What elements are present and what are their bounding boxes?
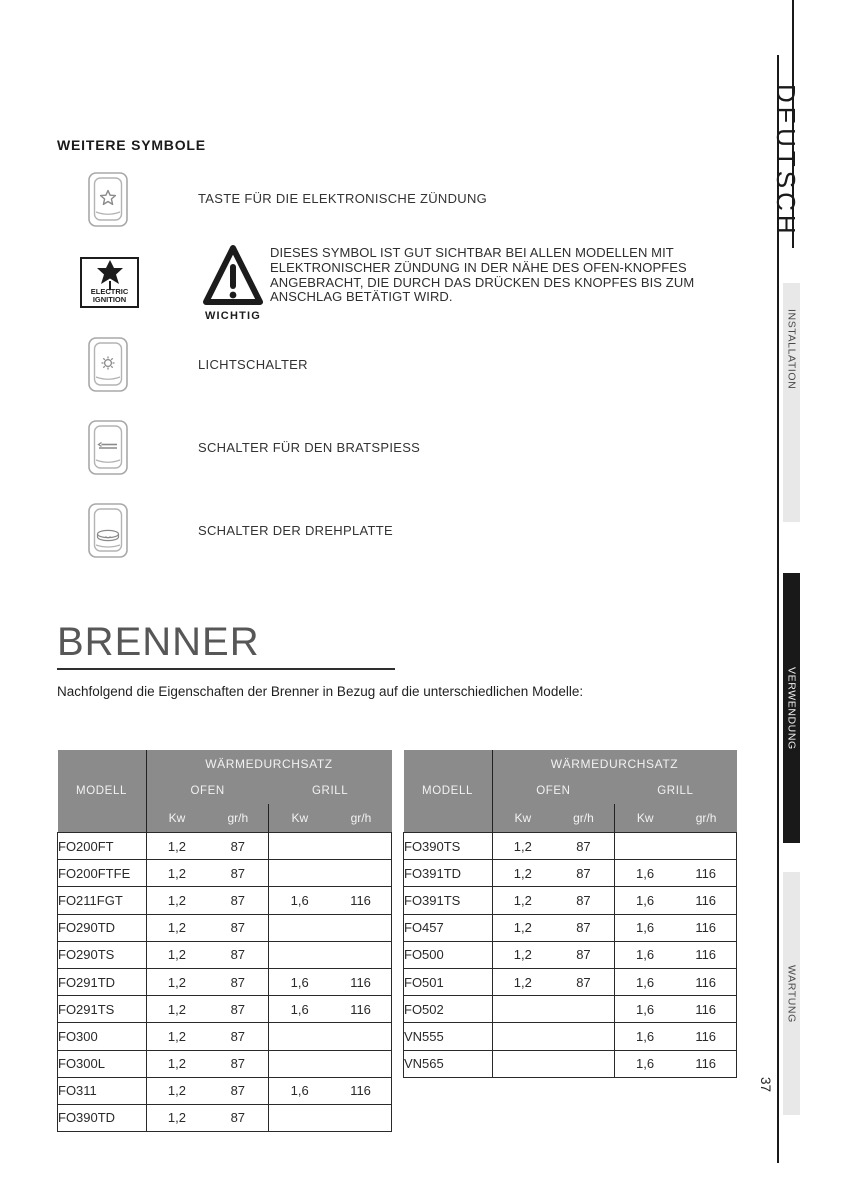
warning-triangle-icon (202, 243, 264, 314)
col-header-ofen: OFEN (146, 778, 269, 804)
value: 1,2 (147, 1083, 208, 1098)
table-row: FO291TS1,2871,6116 (58, 996, 392, 1023)
col-header-modell: MODELL (58, 750, 147, 833)
manual-page: WEITERE SYMBOLE TASTE FÜR DIE ELEKTRONIS… (0, 0, 850, 1179)
value: 1,6 (615, 866, 676, 881)
unit-grh: gr/h (330, 811, 391, 825)
sidebar-tab-installation-label: INSTALLATION (786, 283, 798, 389)
model-cell: FO457 (404, 914, 493, 941)
value: 87 (207, 893, 268, 908)
table-row: FO5021,6116 (404, 996, 737, 1023)
value: 87 (553, 893, 614, 908)
value: 1,2 (147, 1002, 208, 1017)
value: 1,2 (147, 866, 208, 881)
value: 87 (553, 947, 614, 962)
burner-table-left: MODELL WÄRMEDURCHSATZ OFEN GRILL Kw gr/h… (57, 750, 392, 1132)
unit-kw: Kw (269, 811, 330, 825)
value: 1,6 (615, 893, 676, 908)
ofen-cell: 1,287 (492, 941, 614, 968)
grill-cell: 1,6116 (269, 1077, 392, 1104)
grill-cell (269, 1023, 392, 1050)
burner-table-right-body: FO390TS1,287FO391TD1,2871,6116FO391TS1,2… (404, 833, 737, 1078)
table-row: FO3001,287 (58, 1023, 392, 1050)
warning-text-line: ANSCHLAG BETÄTIGT WIRD. (270, 290, 694, 305)
value: 87 (553, 975, 614, 990)
value: 116 (675, 1056, 736, 1071)
warning-caption: WICHTIG (202, 310, 264, 322)
sidebar-tab-verwendung-label: VERWENDUNG (786, 667, 798, 750)
grill-cell: 1,6116 (614, 1050, 736, 1077)
value: 1,2 (147, 1110, 208, 1125)
grill-cell: 1,6116 (614, 887, 736, 914)
light-switch-label: LICHTSCHALTER (198, 357, 308, 372)
value: 87 (207, 947, 268, 962)
unit-grh: gr/h (553, 811, 614, 825)
model-cell: FO311 (58, 1077, 147, 1104)
unit-kw: Kw (493, 811, 554, 825)
grill-cell: 1,6116 (269, 996, 392, 1023)
col-header-waermedurchsatz: WÄRMEDURCHSATZ (492, 750, 737, 778)
model-cell: VN565 (404, 1050, 493, 1077)
model-cell: FO501 (404, 968, 493, 995)
electric-ignition-icon: ELECTRIC IGNITION (80, 257, 139, 308)
grill-cell (269, 833, 392, 860)
grill-cell (269, 1050, 392, 1077)
ofen-cell: 1,287 (492, 833, 614, 860)
value: 87 (553, 866, 614, 881)
ofen-cell: 1,287 (492, 914, 614, 941)
warning-text-line: DIESES SYMBOL IST GUT SICHTBAR BEI ALLEN… (270, 246, 694, 261)
brenner-heading: BRENNER (57, 622, 395, 670)
model-cell: FO290TD (58, 914, 147, 941)
value: 1,2 (147, 893, 208, 908)
value: 1,2 (147, 920, 208, 935)
value: 87 (207, 920, 268, 935)
value: 116 (675, 947, 736, 962)
burner-table-header: MODELL WÄRMEDURCHSATZ OFEN GRILL Kw gr/h… (58, 750, 392, 833)
sidebar-tab-installation: INSTALLATION (783, 283, 800, 522)
ofen-cell: 1,287 (146, 887, 269, 914)
sidebar-tab-verwendung: VERWENDUNG (783, 573, 800, 843)
model-cell: FO291TD (58, 968, 147, 995)
ofen-cell (492, 1023, 614, 1050)
value: 116 (675, 975, 736, 990)
model-cell: FO502 (404, 996, 493, 1023)
value: 1,6 (269, 1083, 330, 1098)
grill-cell (269, 914, 392, 941)
value: 87 (207, 1056, 268, 1071)
table-row: FO391TS1,2871,6116 (404, 887, 737, 914)
ofen-cell (492, 1050, 614, 1077)
ofen-cell: 1,287 (146, 1104, 269, 1131)
grill-cell: 1,6116 (614, 1023, 736, 1050)
model-cell: FO300 (58, 1023, 147, 1050)
table-row: FO390TD1,287 (58, 1104, 392, 1131)
grill-cell (269, 941, 392, 968)
ofen-cell: 1,287 (146, 996, 269, 1023)
ofen-cell: 1,287 (146, 914, 269, 941)
col-header-ofen: OFEN (492, 778, 614, 804)
table-row: VN5551,6116 (404, 1023, 737, 1050)
model-cell: FO390TS (404, 833, 493, 860)
value: 1,2 (493, 947, 554, 962)
value: 116 (675, 893, 736, 908)
turntable-switch-label: SCHALTER DER DREHPLATTE (198, 523, 393, 538)
unit-grh: gr/h (207, 811, 268, 825)
electric-ignition-label-line2: IGNITION (91, 296, 129, 304)
table-row: FO5001,2871,6116 (404, 941, 737, 968)
table-row: FO200FT1,287 (58, 833, 392, 860)
table-row: FO291TD1,2871,6116 (58, 968, 392, 995)
value: 1,6 (615, 1029, 676, 1044)
model-cell: FO390TD (58, 1104, 147, 1131)
col-header-grill: GRILL (269, 778, 392, 804)
page-number: 37 (758, 1077, 773, 1092)
ofen-cell: 1,287 (146, 1023, 269, 1050)
model-cell: FO391TD (404, 860, 493, 887)
grill-cell: 1,6116 (614, 860, 736, 887)
ofen-cell: 1,287 (146, 833, 269, 860)
value: 1,2 (147, 1029, 208, 1044)
burner-table-left-body: FO200FT1,287FO200FTFE1,287FO211FGT1,2871… (58, 833, 392, 1132)
value: 1,2 (147, 839, 208, 854)
model-cell: VN555 (404, 1023, 493, 1050)
table-row: FO390TS1,287 (404, 833, 737, 860)
model-cell: FO200FT (58, 833, 147, 860)
value: 1,6 (269, 1002, 330, 1017)
value: 1,2 (493, 975, 554, 990)
value: 87 (207, 1083, 268, 1098)
ofen-cell: 1,287 (146, 968, 269, 995)
burner-table-header: MODELL WÄRMEDURCHSATZ OFEN GRILL Kw gr/h… (404, 750, 737, 833)
value: 1,2 (493, 920, 554, 935)
value: 116 (675, 1002, 736, 1017)
value: 1,2 (147, 947, 208, 962)
warning-text-line: ANGEBRACHT, DIE DURCH DAS DRÜCKEN DES KN… (270, 276, 694, 291)
language-tab: DEUTSCH (770, 84, 801, 238)
table-row: FO4571,2871,6116 (404, 914, 737, 941)
value: 116 (675, 1029, 736, 1044)
rotisserie-switch-label: SCHALTER FÜR DEN BRATSPIESS (198, 440, 420, 455)
table-row: FO290TD1,287 (58, 914, 392, 941)
ofen-cell: 1,287 (492, 887, 614, 914)
brenner-intro: Nachfolgend die Eigenschaften der Brenne… (57, 684, 583, 699)
value: 87 (207, 866, 268, 881)
value: 1,2 (147, 975, 208, 990)
value: 1,6 (269, 893, 330, 908)
value: 116 (675, 920, 736, 935)
model-cell: FO300L (58, 1050, 147, 1077)
value: 1,2 (493, 893, 554, 908)
grill-cell (269, 860, 392, 887)
symbols-heading: WEITERE SYMBOLE (57, 137, 206, 153)
model-cell: FO290TS (58, 941, 147, 968)
table-row: FO3111,2871,6116 (58, 1077, 392, 1104)
col-header-modell: MODELL (404, 750, 493, 833)
model-cell: FO500 (404, 941, 493, 968)
col-header-waermedurchsatz: WÄRMEDURCHSATZ (146, 750, 392, 778)
value: 1,6 (615, 920, 676, 935)
ofen-cell (492, 996, 614, 1023)
table-row: VN5651,6116 (404, 1050, 737, 1077)
ignition-button-label: TASTE FÜR DIE ELEKTRONISCHE ZÜNDUNG (198, 191, 487, 206)
table-row: FO200FTFE1,287 (58, 860, 392, 887)
warning-text: DIESES SYMBOL IST GUT SICHTBAR BEI ALLEN… (270, 246, 694, 305)
grill-cell: 1,6116 (614, 968, 736, 995)
grill-cell (614, 833, 736, 860)
col-header-grill: GRILL (614, 778, 736, 804)
grill-cell: 1,6116 (269, 968, 392, 995)
value: 1,6 (615, 947, 676, 962)
model-cell: FO211FGT (58, 887, 147, 914)
grill-cell: 1,6116 (614, 941, 736, 968)
model-cell: FO291TS (58, 996, 147, 1023)
ofen-cell: 1,287 (492, 968, 614, 995)
sidebar-tab-wartung: WARTUNG (783, 872, 800, 1115)
table-row: FO300L1,287 (58, 1050, 392, 1077)
table-row: FO5011,2871,6116 (404, 968, 737, 995)
value: 1,6 (615, 1056, 676, 1071)
model-cell: FO200FTFE (58, 860, 147, 887)
ofen-cell: 1,287 (492, 860, 614, 887)
value: 1,6 (615, 975, 676, 990)
unit-grh: gr/h (676, 811, 737, 825)
unit-kw: Kw (615, 811, 676, 825)
value: 116 (330, 1083, 391, 1098)
table-row: FO391TD1,2871,6116 (404, 860, 737, 887)
model-cell: FO391TS (404, 887, 493, 914)
table-row: FO290TS1,287 (58, 941, 392, 968)
ofen-cell: 1,287 (146, 1050, 269, 1077)
table-row: FO211FGT1,2871,6116 (58, 887, 392, 914)
burner-table-right: MODELL WÄRMEDURCHSATZ OFEN GRILL Kw gr/h… (403, 750, 737, 1078)
grill-cell: 1,6116 (614, 996, 736, 1023)
value: 116 (330, 975, 391, 990)
value: 87 (207, 839, 268, 854)
value: 87 (207, 975, 268, 990)
warning-text-line: ELEKTRONISCHER ZÜNDUNG IN DER NÄHE DES O… (270, 261, 694, 276)
value: 87 (207, 1002, 268, 1017)
value: 1,2 (147, 1056, 208, 1071)
value: 87 (207, 1029, 268, 1044)
grill-cell: 1,6116 (269, 887, 392, 914)
ofen-cell: 1,287 (146, 1077, 269, 1104)
grill-cell (269, 1104, 392, 1131)
value: 116 (675, 866, 736, 881)
value: 87 (553, 839, 614, 854)
grill-cell: 1,6116 (614, 914, 736, 941)
light-switch-icon (88, 337, 128, 397)
sidebar-tab-wartung-label: WARTUNG (786, 965, 798, 1023)
value: 1,2 (493, 866, 554, 881)
ignition-button-icon (88, 172, 128, 232)
value: 116 (330, 893, 391, 908)
value: 1,6 (269, 975, 330, 990)
rotisserie-switch-icon (88, 420, 128, 480)
turntable-switch-icon (88, 503, 128, 563)
value: 87 (553, 920, 614, 935)
ofen-cell: 1,287 (146, 941, 269, 968)
value: 1,2 (493, 839, 554, 854)
value: 1,6 (615, 1002, 676, 1017)
unit-kw: Kw (147, 811, 208, 825)
ofen-cell: 1,287 (146, 860, 269, 887)
value: 116 (330, 1002, 391, 1017)
value: 87 (207, 1110, 268, 1125)
